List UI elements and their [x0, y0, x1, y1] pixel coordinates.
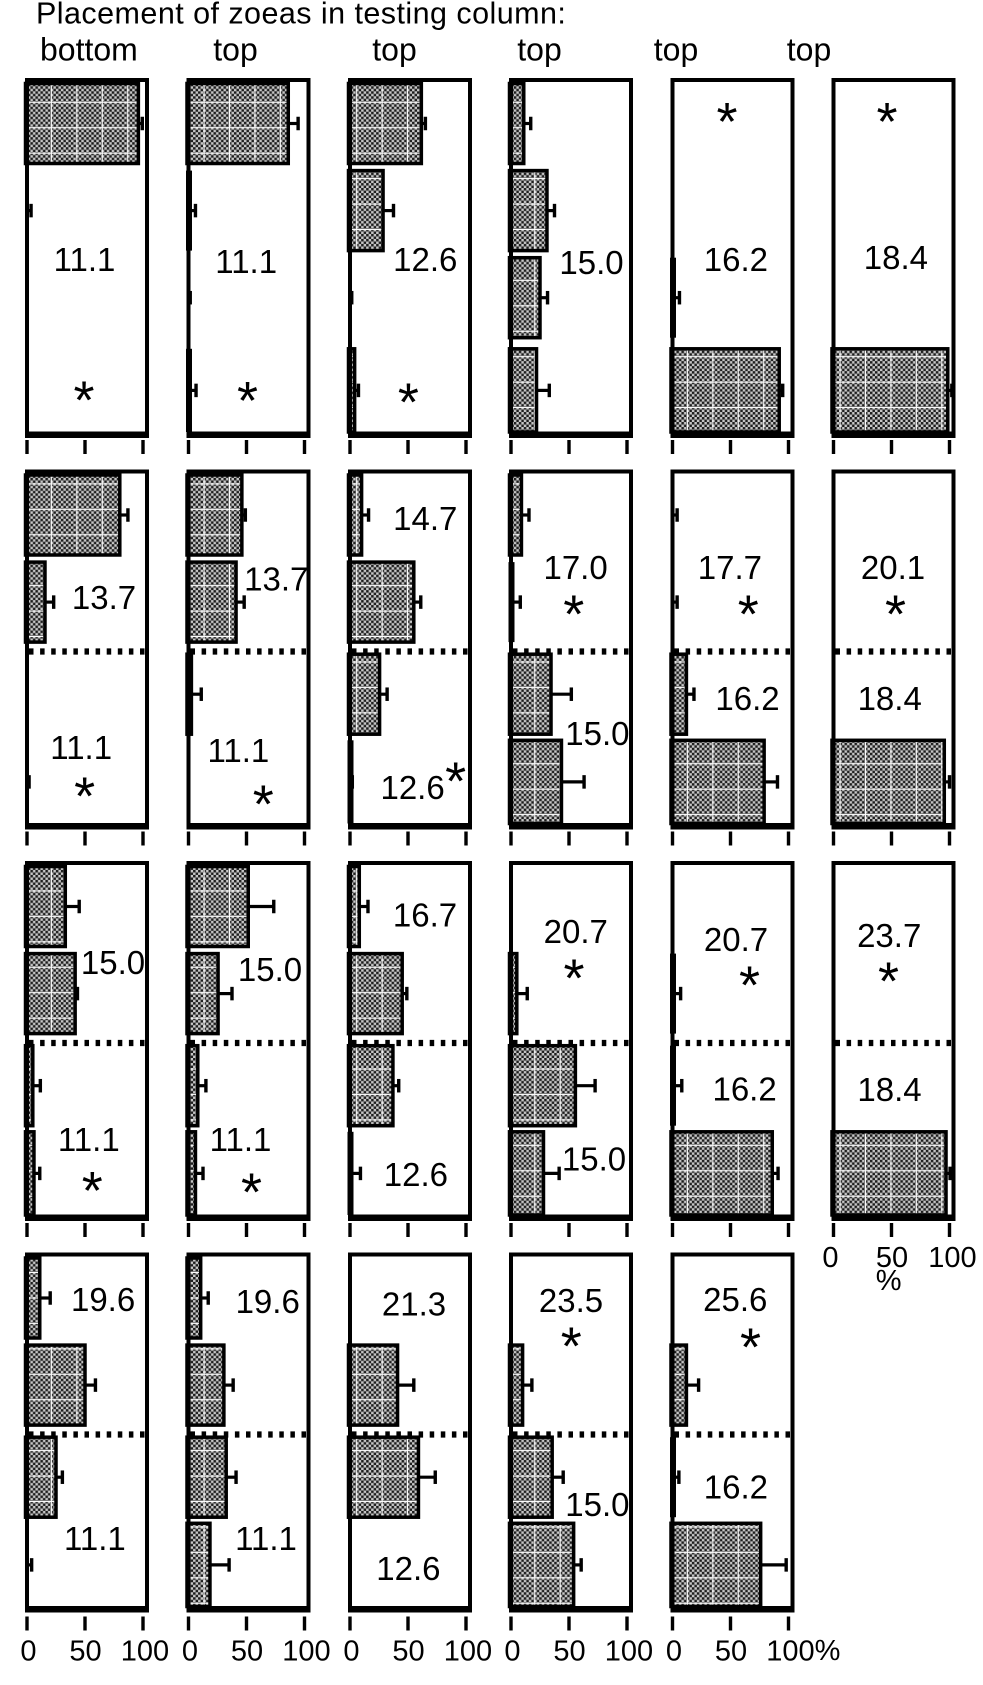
svg-text:20.7: 20.7: [544, 913, 608, 950]
svg-text:17.7: 17.7: [698, 549, 762, 586]
svg-text:0: 0: [666, 1636, 682, 1668]
svg-text:50: 50: [715, 1636, 747, 1668]
svg-text:*: *: [885, 585, 906, 645]
svg-text:15.0: 15.0: [81, 944, 145, 981]
svg-text:11.1: 11.1: [208, 732, 270, 769]
svg-text:21.3: 21.3: [382, 1286, 446, 1323]
svg-text:0: 0: [182, 1636, 198, 1668]
svg-text:15.0: 15.0: [238, 951, 302, 988]
svg-text:16.2: 16.2: [704, 241, 768, 278]
svg-text:15.0: 15.0: [559, 244, 623, 281]
svg-text:*: *: [740, 1318, 761, 1378]
svg-text:11.1: 11.1: [50, 729, 112, 766]
svg-text:bottom: bottom: [40, 32, 138, 68]
svg-text:100: 100: [928, 1242, 976, 1274]
svg-text:18.4: 18.4: [864, 239, 928, 276]
svg-text:13.7: 13.7: [72, 579, 136, 616]
svg-text:*: *: [82, 1161, 103, 1221]
svg-text:50: 50: [69, 1636, 101, 1668]
svg-text:15.0: 15.0: [565, 715, 629, 752]
svg-text:50: 50: [392, 1636, 424, 1668]
svg-text:12.6: 12.6: [376, 1550, 440, 1587]
svg-text:25.6: 25.6: [703, 1281, 767, 1318]
svg-text:16.2: 16.2: [712, 1071, 776, 1108]
svg-text:*: *: [253, 775, 274, 835]
svg-text:top: top: [787, 32, 831, 68]
svg-text:14.7: 14.7: [393, 500, 457, 537]
svg-text:50: 50: [231, 1636, 263, 1668]
svg-text:top: top: [517, 32, 561, 68]
svg-text:11.1: 11.1: [210, 1121, 272, 1158]
svg-text:0: 0: [504, 1636, 520, 1668]
svg-text:%: %: [876, 1265, 902, 1297]
svg-text:*: *: [878, 952, 899, 1012]
svg-text:Placement of zoeas in testing: Placement of zoeas in testing column:: [36, 0, 566, 31]
svg-text:19.6: 19.6: [71, 1281, 135, 1318]
svg-text:50: 50: [553, 1636, 585, 1668]
svg-text:*: *: [237, 371, 258, 431]
svg-text:15.0: 15.0: [565, 1486, 629, 1523]
svg-text:*: *: [876, 92, 897, 152]
svg-text:12.6: 12.6: [393, 241, 457, 278]
svg-text:13.7: 13.7: [244, 561, 308, 598]
svg-text:top: top: [372, 32, 416, 68]
svg-text:20.1: 20.1: [861, 549, 925, 586]
svg-text:100: 100: [282, 1636, 330, 1668]
svg-text:100: 100: [605, 1636, 653, 1668]
svg-text:100: 100: [121, 1636, 169, 1668]
svg-text:*: *: [74, 767, 95, 827]
svg-text:0: 0: [343, 1636, 359, 1668]
svg-text:16.7: 16.7: [393, 897, 457, 934]
svg-text:20.7: 20.7: [704, 921, 768, 958]
svg-text:*: *: [73, 371, 94, 431]
svg-text:*: *: [739, 956, 760, 1016]
svg-text:*: *: [241, 1163, 262, 1223]
svg-text:0: 0: [20, 1636, 36, 1668]
svg-text:18.4: 18.4: [858, 680, 922, 717]
svg-text:100: 100: [766, 1636, 814, 1668]
svg-text:11.1: 11.1: [235, 1520, 297, 1557]
svg-text:*: *: [561, 1317, 582, 1377]
svg-text:11.1: 11.1: [54, 241, 116, 278]
svg-text:*: *: [738, 585, 759, 645]
svg-text:*: *: [445, 752, 466, 812]
svg-text:11.1: 11.1: [215, 243, 277, 280]
svg-text:11.1: 11.1: [64, 1520, 126, 1557]
svg-text:19.6: 19.6: [236, 1283, 300, 1320]
svg-text:18.4: 18.4: [857, 1071, 921, 1108]
svg-text:12.6: 12.6: [380, 769, 444, 806]
svg-text:%: %: [815, 1635, 841, 1667]
svg-text:100: 100: [444, 1636, 492, 1668]
svg-text:*: *: [716, 92, 737, 152]
svg-text:0: 0: [822, 1242, 838, 1274]
svg-text:16.2: 16.2: [704, 1469, 768, 1506]
svg-text:17.0: 17.0: [543, 549, 607, 586]
svg-text:12.6: 12.6: [384, 1156, 448, 1193]
svg-text:23.7: 23.7: [857, 917, 921, 954]
svg-text:23.5: 23.5: [539, 1282, 603, 1319]
svg-text:*: *: [563, 949, 584, 1009]
svg-text:*: *: [563, 585, 584, 645]
svg-text:16.2: 16.2: [715, 680, 779, 717]
svg-text:15.0: 15.0: [562, 1141, 626, 1178]
svg-text:11.1: 11.1: [58, 1121, 120, 1158]
svg-text:top: top: [213, 32, 257, 68]
svg-text:top: top: [654, 32, 698, 68]
svg-text:*: *: [398, 373, 419, 433]
